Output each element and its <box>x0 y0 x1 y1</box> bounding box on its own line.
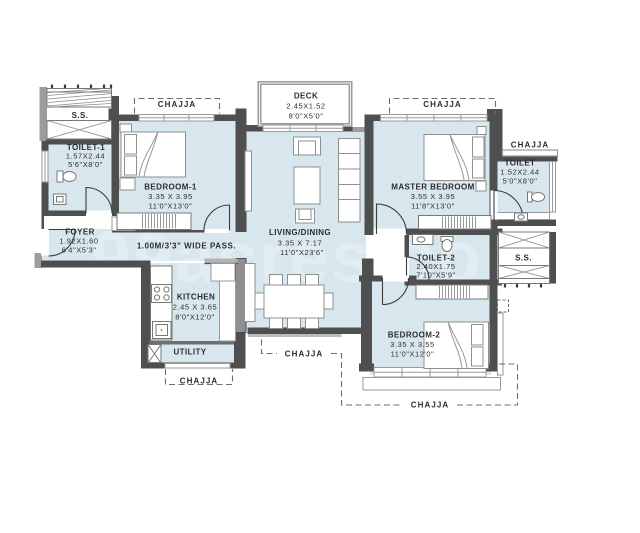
svg-text:5'6"X8'0": 5'6"X8'0" <box>68 160 103 169</box>
svg-text:S.S.: S.S. <box>72 111 89 120</box>
svg-text:CHAJJA: CHAJJA <box>180 377 219 386</box>
svg-text:1.92X1.60: 1.92X1.60 <box>59 237 98 246</box>
svg-text:CHAJJA: CHAJJA <box>158 100 197 109</box>
svg-text:LIVING/DINING: LIVING/DINING <box>269 228 331 237</box>
svg-text:3.35 X 7.17: 3.35 X 7.17 <box>278 239 322 248</box>
svg-text:8'0"X5'0": 8'0"X5'0" <box>289 112 324 121</box>
svg-text:CHAJJA: CHAJJA <box>423 100 462 109</box>
svg-text:KITCHEN: KITCHEN <box>177 293 215 302</box>
svg-text:3.55 X 3.95: 3.55 X 3.95 <box>411 192 455 201</box>
svg-text:BEDROOM-1: BEDROOM-1 <box>144 183 197 192</box>
svg-text:1.52X2.44: 1.52X2.44 <box>500 168 539 177</box>
svg-text:S.S.: S.S. <box>515 254 532 263</box>
svg-text:11'0"X13'0": 11'0"X13'0" <box>149 202 193 211</box>
svg-text:11'8"X13'0": 11'8"X13'0" <box>411 202 455 211</box>
svg-text:FOYER: FOYER <box>65 228 95 237</box>
svg-text:11'0"X23'6": 11'0"X23'6" <box>280 248 324 257</box>
svg-text:CHAJJA: CHAJJA <box>511 141 550 150</box>
svg-text:BEDROOM-2: BEDROOM-2 <box>388 331 441 340</box>
svg-text:11'0"X12'0": 11'0"X12'0" <box>391 350 435 359</box>
svg-text:UTILITY: UTILITY <box>173 348 206 357</box>
svg-text:6'4"X5'3": 6'4"X5'3" <box>62 246 97 255</box>
svg-text:CHAJJA: CHAJJA <box>285 350 324 359</box>
svg-text:7'10"X5'9": 7'10"X5'9" <box>416 271 456 280</box>
svg-text:MASTER BEDROOM: MASTER BEDROOM <box>391 183 474 192</box>
svg-text:TOILET: TOILET <box>505 159 536 168</box>
svg-text:2.45 X 3.65: 2.45 X 3.65 <box>173 303 217 312</box>
svg-text:2.45X1.52: 2.45X1.52 <box>286 102 325 111</box>
svg-text:3.35 X 3.55: 3.35 X 3.55 <box>390 340 434 349</box>
svg-text:CHAJJA: CHAJJA <box>411 401 450 410</box>
svg-text:5'0"X8'0": 5'0"X8'0" <box>503 177 538 186</box>
svg-text:1.00M/3'3" WIDE PASS.: 1.00M/3'3" WIDE PASS. <box>137 242 236 251</box>
svg-text:3.35 X 3.95: 3.35 X 3.95 <box>148 192 192 201</box>
svg-text:DECK: DECK <box>294 92 318 101</box>
svg-text:8'0"X12'0": 8'0"X12'0" <box>175 313 215 322</box>
